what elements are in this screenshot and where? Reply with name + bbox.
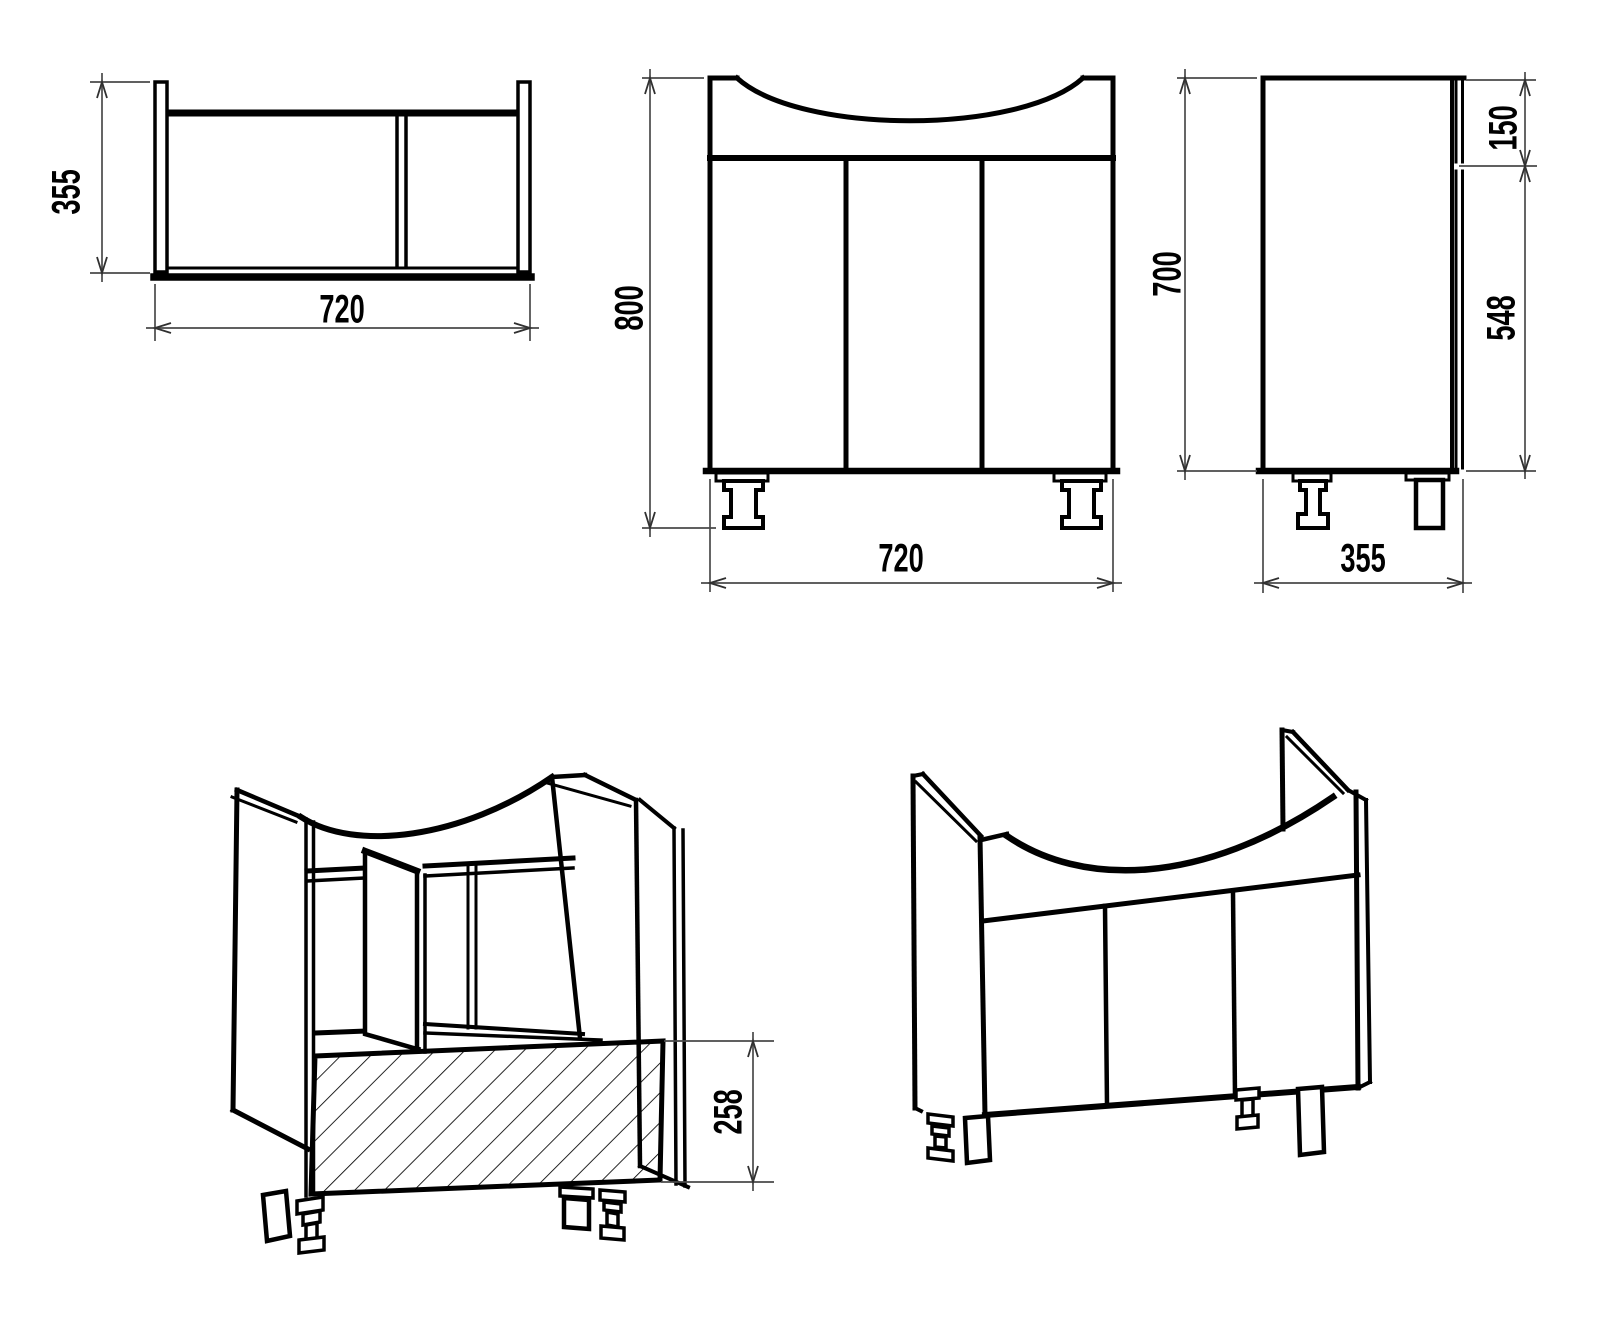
top-view-left-side-panel xyxy=(155,82,167,272)
iso-open-basin-curve xyxy=(301,777,552,836)
iso-closed-front-doors xyxy=(983,875,1358,1115)
iso-closed-view xyxy=(913,730,1370,1163)
dim-front-width: 720 xyxy=(701,479,1122,592)
iso-closed-left-panel xyxy=(913,774,981,1111)
dim-label-front-width: 720 xyxy=(878,537,923,581)
front-view: 800 720 xyxy=(608,69,1122,592)
side-view-rear-leg xyxy=(1406,473,1449,528)
dim-label-side-top-section: 150 xyxy=(1482,105,1526,150)
front-view-right-leg xyxy=(1054,473,1106,528)
iso-closed-legs xyxy=(928,1087,1324,1163)
iso-open-view: 258 xyxy=(232,775,774,1253)
dim-top-width: 720 xyxy=(146,284,539,341)
dim-side-sections: 150 548 xyxy=(1459,72,1537,479)
dim-iso-base-height: 258 xyxy=(661,1032,774,1191)
dim-label-iso-base-height: 258 xyxy=(707,1089,751,1134)
side-view: 700 150 548 355 xyxy=(1146,69,1537,593)
dim-label-front-height: 800 xyxy=(608,285,652,330)
dim-side-height: 700 xyxy=(1146,69,1257,480)
top-view-divider xyxy=(397,117,406,267)
iso-open-legs xyxy=(263,1187,625,1253)
top-view-right-side-panel xyxy=(518,82,530,272)
front-view-left-leg xyxy=(716,473,768,528)
dim-label-top-width: 720 xyxy=(319,288,364,332)
iso-closed-right-panel xyxy=(1282,730,1370,1088)
side-view-door-edge xyxy=(1456,82,1463,468)
side-view-front-leg xyxy=(1293,473,1331,528)
cabinet-drawing: 355 720 xyxy=(0,0,1600,1336)
dim-label-top-depth: 355 xyxy=(45,169,89,214)
technical-drawing-sheet: 355 720 xyxy=(0,0,1600,1336)
dim-label-side-depth: 355 xyxy=(1340,537,1385,581)
iso-open-divider xyxy=(365,851,425,1052)
iso-open-left-panel xyxy=(232,790,314,1196)
dim-top-depth: 355 xyxy=(45,73,150,282)
dim-front-height: 800 xyxy=(608,69,716,537)
dim-label-side-height: 700 xyxy=(1146,251,1190,296)
front-view-basin-curve xyxy=(737,78,1083,121)
top-view: 355 720 xyxy=(45,73,539,341)
iso-open-hatched-base-panel xyxy=(311,1041,663,1194)
dim-label-side-door-height: 548 xyxy=(1480,295,1524,340)
